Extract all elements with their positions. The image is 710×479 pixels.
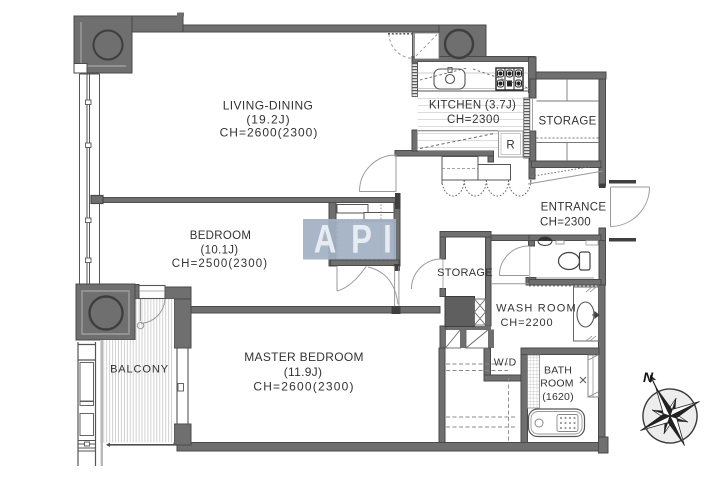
svg-text:N: N [643, 369, 654, 385]
svg-text:(11.9J): (11.9J) [284, 365, 323, 379]
svg-text:WASH ROOM: WASH ROOM [496, 303, 577, 315]
svg-text:LIVING-DINING: LIVING-DINING [223, 99, 314, 113]
svg-text:MASTER BEDROOM: MASTER BEDROOM [244, 350, 364, 364]
svg-text:R: R [506, 140, 514, 152]
svg-text:KITCHEN (3.7J): KITCHEN (3.7J) [429, 100, 516, 112]
svg-text:CH=2600(2300): CH=2600(2300) [220, 126, 319, 140]
svg-text:STORAGE: STORAGE [538, 116, 596, 128]
svg-text:CH=2200: CH=2200 [500, 317, 553, 329]
svg-text:(19.2J): (19.2J) [246, 113, 290, 127]
svg-text:BALCONY: BALCONY [110, 364, 169, 376]
svg-text:ENTRANCE: ENTRANCE [541, 202, 607, 214]
svg-text:STORAGE: STORAGE [437, 267, 493, 279]
svg-text:I: I [383, 217, 392, 262]
svg-text:A: A [314, 217, 337, 262]
svg-text:(1620): (1620) [542, 391, 574, 403]
svg-text:CH=2300: CH=2300 [540, 217, 591, 229]
svg-text:CH=2300: CH=2300 [447, 114, 500, 126]
svg-text:CH=2500(2300): CH=2500(2300) [172, 258, 268, 270]
svg-text:BATH: BATH [544, 365, 572, 377]
svg-text:BEDROOM: BEDROOM [190, 230, 252, 242]
svg-text:(10.1J): (10.1J) [201, 245, 239, 257]
svg-text:P: P [351, 217, 372, 262]
svg-text:ROOM: ROOM [540, 378, 573, 390]
svg-text:CH=2600(2300): CH=2600(2300) [253, 380, 354, 394]
svg-text:W/D: W/D [494, 357, 517, 369]
